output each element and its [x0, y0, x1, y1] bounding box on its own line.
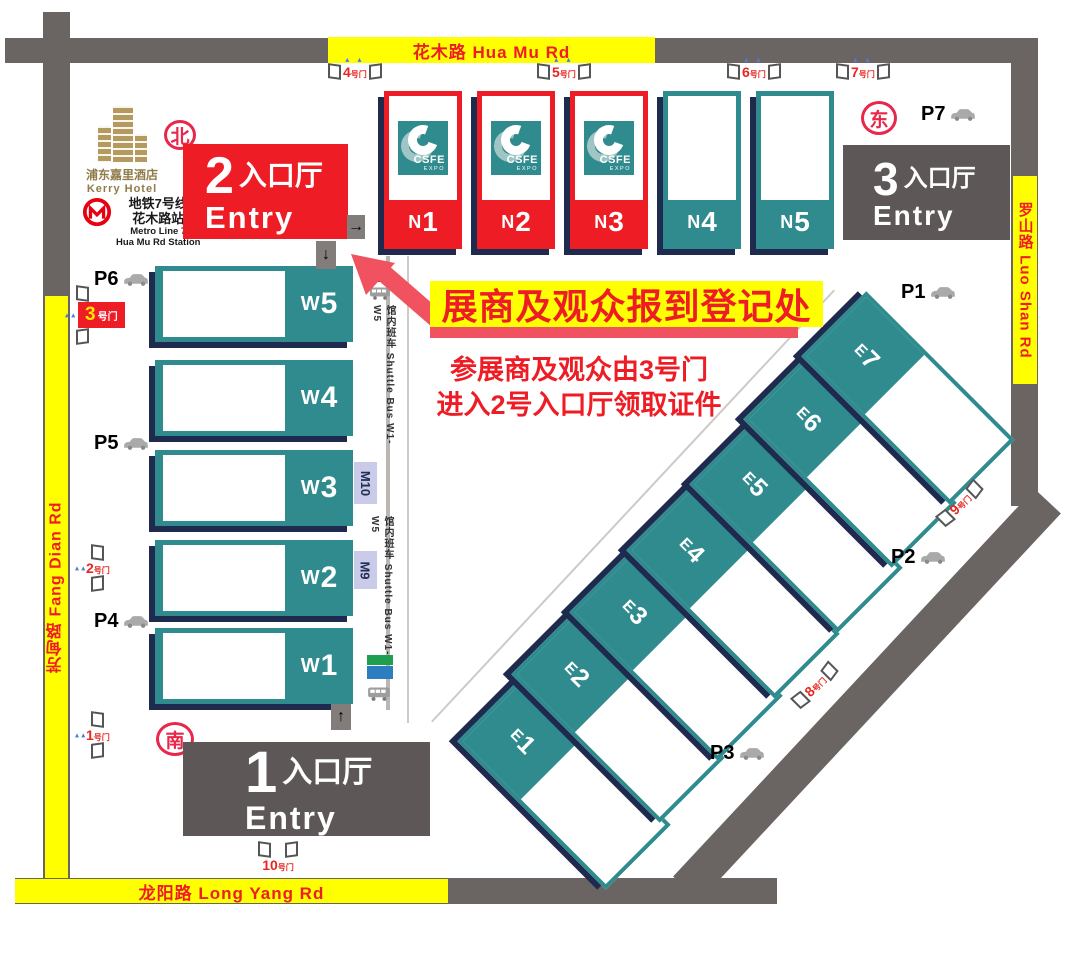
compass-east: 东	[861, 101, 897, 135]
gate-2: 2号门	[86, 545, 110, 591]
hall-w2: W2	[155, 540, 353, 616]
hall-w5: W5	[155, 266, 353, 342]
hall-n5: N5	[756, 91, 834, 249]
gate-direction-marks	[345, 55, 364, 64]
hall-n2: CSFEEXPO N2	[477, 91, 555, 249]
entry-2-label-zh: 入口厅	[239, 162, 323, 190]
registration-arrow-head-icon	[349, 250, 399, 300]
kerry-hotel-block: 浦东嘉里酒店 Kerry Hotel	[66, 106, 178, 195]
gate-direction-marks	[75, 731, 85, 740]
parking-p3: P3	[710, 742, 765, 765]
parking-p5: P5	[94, 432, 149, 455]
door-icon	[727, 63, 740, 80]
door-icon	[91, 711, 104, 728]
signage-blue	[367, 666, 393, 679]
gate-4: 4号门	[328, 64, 382, 79]
entry-3-label-zh: 入口厅	[904, 167, 976, 191]
car-icon	[950, 108, 976, 122]
door-icon	[877, 63, 890, 80]
car-icon	[739, 747, 765, 761]
road-label-long-yang: 龙阳路 Long Yang Rd	[15, 879, 448, 903]
shanghai-metro-logo-icon	[82, 197, 112, 227]
door-icon	[369, 63, 382, 80]
door-icon	[91, 742, 104, 759]
car-icon	[123, 615, 149, 629]
entry-hall-1: 1 入口厅 Entry	[183, 742, 430, 836]
road-label-hua-mu: 花木路 Hua Mu Rd	[328, 37, 655, 63]
hotel-name-zh: 浦东嘉里酒店	[66, 166, 178, 183]
door-icon	[768, 63, 781, 80]
door-icon	[76, 328, 89, 345]
gate-direction-marks	[744, 55, 763, 64]
gate-direction-marks	[853, 55, 872, 64]
metro-exit-badge-m10: M10	[354, 462, 377, 504]
gate-6: 6号门	[727, 64, 781, 79]
registration-notice: 参展商及观众由3号门 进入2号入口厅领取证件	[428, 353, 730, 423]
door-icon	[537, 63, 550, 80]
flow-arrow-right-icon: →	[347, 215, 365, 239]
hall-n4: N4	[663, 91, 741, 249]
parking-p1: P1	[901, 281, 956, 304]
gate-direction-marks	[75, 564, 85, 573]
gate-direction-marks	[554, 55, 573, 64]
gate-5: 5号门	[537, 64, 591, 79]
registration-banner: 展商及观众报到登记处	[430, 281, 823, 327]
car-icon	[123, 437, 149, 451]
parking-p7: P7	[921, 103, 976, 126]
door-icon	[91, 544, 104, 561]
parking-p6: P6	[94, 268, 149, 291]
flow-arrow-down-icon: ↓	[316, 241, 336, 269]
road-label-luo-shan: 罗山路 Luo Shan Rd	[1013, 176, 1037, 384]
car-icon	[920, 551, 946, 565]
entry-hall-3: 3 入口厅 Entry	[843, 145, 1010, 240]
hall-w3: W3	[155, 450, 353, 526]
gate-3: 3号门	[76, 286, 125, 344]
gate-1: 1号门	[86, 712, 110, 758]
shuttle-bus-note-upper: 馆内班车 Shuttle Bus W1-W5	[371, 305, 397, 455]
door-icon	[285, 841, 298, 858]
entry-2-number: 2	[205, 150, 234, 202]
csfe-expo-logo-icon: CSFEEXPO	[491, 121, 541, 175]
entry-hall-2: 2 入口厅 Entry	[183, 144, 348, 239]
entry-3-label-en: Entry	[873, 202, 1010, 230]
signage-green	[367, 655, 393, 665]
door-icon	[328, 63, 341, 80]
hotel-icon	[66, 106, 178, 162]
gate-3-highlight: 3号门	[78, 302, 125, 328]
csfe-expo-logo-icon: CSFEEXPO	[398, 121, 448, 175]
door-icon	[578, 63, 591, 80]
expo-map-canvas: 花木路 Hua Mu Rd 龙阳路 Long Yang Rd 芳甸路 Fang …	[0, 0, 1080, 953]
car-icon	[930, 286, 956, 300]
registration-notice-line1: 参展商及观众由3号门	[428, 353, 730, 388]
gate-7: 7号门	[836, 64, 890, 79]
entry-1-label-en: Entry	[245, 802, 430, 834]
registration-notice-line2: 进入2号入口厅领取证件	[428, 388, 730, 423]
hall-n3: CSFEEXPO N3	[570, 91, 648, 249]
hall-n1: CSFEEXPO N1	[384, 91, 462, 249]
hall-w4: W4	[155, 360, 353, 436]
metro-station-en: Hua Mu Rd Station	[116, 238, 200, 249]
gate-10: 10号门	[258, 842, 298, 872]
entry-1-label-zh: 入口厅	[282, 758, 372, 788]
shuttle-bus-note-lower: 馆内班车 Shuttle Bus W1-W5	[369, 516, 395, 656]
road-label-fang-dian: 芳甸路 Fang Dian Rd	[45, 296, 68, 878]
entry-2-label-en: Entry	[205, 202, 348, 233]
door-icon	[258, 841, 271, 858]
hall-w1: W1	[155, 628, 353, 704]
entry-1-number: 1	[245, 744, 277, 802]
csfe-expo-logo-icon: CSFEEXPO	[584, 121, 634, 175]
gate-direction-marks	[65, 311, 75, 320]
hotel-name-en: Kerry Hotel	[66, 183, 178, 195]
car-icon	[123, 273, 149, 287]
door-icon	[91, 575, 104, 592]
flow-arrow-up-icon: ↑	[331, 704, 351, 730]
bus-icon	[367, 686, 391, 702]
door-icon	[836, 63, 849, 80]
parking-p4: P4	[94, 610, 149, 633]
entry-3-number: 3	[873, 156, 899, 202]
parking-p2: P2	[891, 546, 946, 569]
divider-line-vertical-thin	[407, 256, 409, 723]
door-icon	[76, 285, 89, 302]
